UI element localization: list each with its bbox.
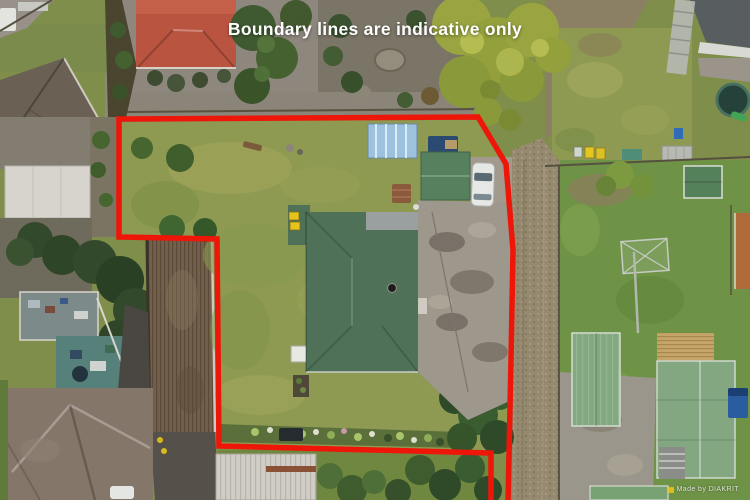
gravel-driveway — [512, 138, 560, 500]
stairs — [659, 447, 685, 479]
bottom-centre — [216, 450, 502, 500]
yellow-bin — [290, 222, 300, 230]
chimney — [388, 284, 397, 293]
compost-bin — [279, 428, 303, 441]
watermark: Made by DIAKRIT — [668, 486, 739, 493]
photo-canvas — [0, 0, 750, 500]
watermark-text: Made by DIAKRIT — [677, 486, 739, 493]
right-side — [512, 138, 750, 500]
orange-house-edge — [735, 213, 750, 289]
disclaimer-text: Boundary lines are indicative only — [228, 19, 522, 40]
clothesline — [621, 238, 669, 273]
white-table — [291, 346, 307, 362]
planter — [293, 375, 309, 397]
pergola — [657, 333, 714, 361]
bottom-left-house — [0, 380, 153, 500]
bottom-green-roof — [590, 486, 668, 500]
grey-roof-section — [366, 212, 418, 230]
blue-bin — [674, 128, 683, 139]
diakrit-logo-icon — [668, 487, 674, 493]
yellow-bin — [585, 147, 594, 158]
yellow-bin — [289, 212, 299, 220]
picnic-table — [392, 184, 411, 203]
white-car-2 — [110, 486, 134, 499]
blue-tarp-carport — [368, 124, 417, 158]
aerial-property-photo: Boundary lines are indicative only Made … — [0, 0, 750, 500]
white-garage-roof — [216, 454, 316, 500]
trampoline — [717, 84, 749, 116]
yellow-bin — [596, 148, 605, 159]
white-flat-roof — [5, 166, 90, 218]
white-car — [471, 163, 494, 207]
main-house-roof — [306, 212, 418, 372]
